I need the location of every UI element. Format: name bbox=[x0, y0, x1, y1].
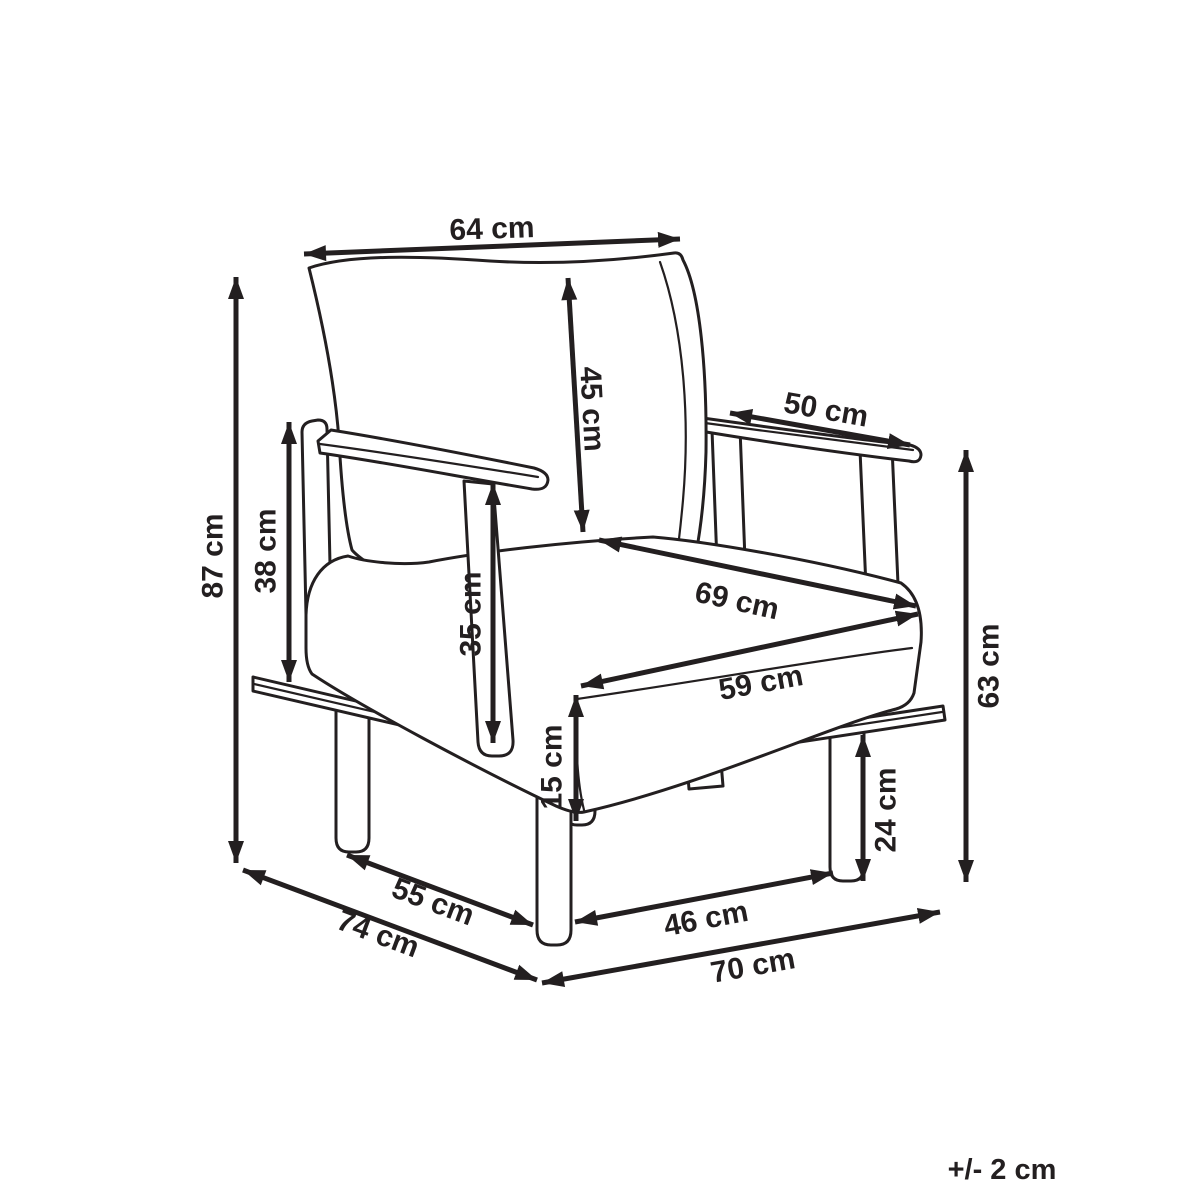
dimension-arm-side-height: 63 cm bbox=[966, 450, 1006, 882]
dimension-label-backrest-width: 64 cm bbox=[449, 211, 535, 247]
dimension-label-arm-side-height: 63 cm bbox=[973, 623, 1006, 708]
front-left-leg bbox=[336, 704, 369, 852]
armchair-drawing bbox=[253, 253, 945, 945]
dimension-armrest-rear-height: 38 cm bbox=[250, 422, 290, 682]
dimension-front-leg-span: 46 cm bbox=[575, 873, 833, 943]
dimension-overall-depth: 74 cm bbox=[243, 870, 537, 980]
dimension-label-cushion-thickness: 15 cm bbox=[536, 724, 569, 809]
tolerance-note: +/- 2 cm bbox=[948, 1154, 1057, 1186]
dimension-label-backrest-height: 45 cm bbox=[573, 366, 610, 453]
dimension-label-armrest-rear-height: 38 cm bbox=[250, 508, 283, 593]
dimension-backrest-width: 64 cm bbox=[304, 211, 680, 254]
dimension-label-base-side-depth: 55 cm bbox=[387, 872, 478, 933]
dimension-leg-height: 24 cm bbox=[863, 735, 903, 881]
dimension-label-overall-height: 87 cm bbox=[197, 513, 230, 598]
right-armrest-rear-post bbox=[712, 428, 745, 563]
right-armrest-front-post bbox=[860, 447, 898, 587]
dimension-label-armrest-front-height: 35 cm bbox=[455, 571, 488, 656]
dimension-overall-height: 87 cm bbox=[197, 277, 237, 863]
dimension-label-overall-depth: 74 cm bbox=[332, 904, 423, 965]
armchair-dimension-drawing: 64 cm 45 cm 50 cm 87 cm 38 cm 35 cm 69 c… bbox=[0, 0, 1200, 1200]
back-right-leg bbox=[830, 720, 864, 881]
dimension-label-leg-height: 24 cm bbox=[870, 767, 903, 852]
dimension-diagram-canvas: 64 cm 45 cm 50 cm 87 cm 38 cm 35 cm 69 c… bbox=[0, 0, 1200, 1200]
